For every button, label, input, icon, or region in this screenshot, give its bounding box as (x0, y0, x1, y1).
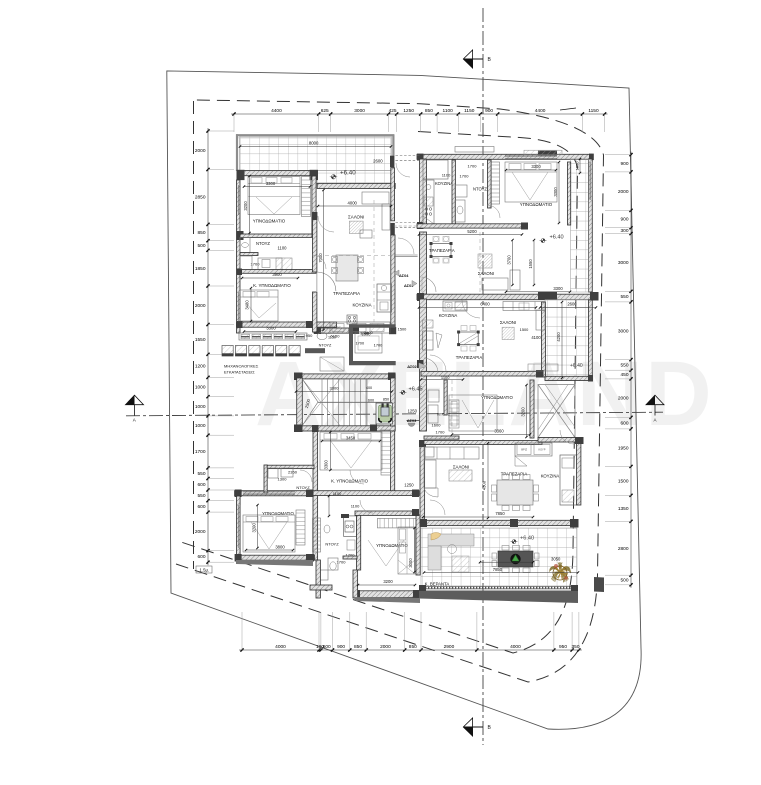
svg-text:1100: 1100 (443, 108, 454, 114)
svg-text:ΚΟΥΖΙΝΑ: ΚΟΥΖΙΝΑ (541, 474, 560, 479)
svg-text:2900: 2900 (444, 644, 455, 650)
svg-text:600: 600 (368, 399, 374, 403)
svg-text:300: 300 (620, 228, 628, 234)
svg-text:3000: 3000 (408, 558, 413, 568)
svg-text:1000: 1000 (575, 161, 580, 171)
svg-text:ΤΡΑΠΕΖΑΡΙΑ: ΤΡΑΠΕΖΑΡΙΑ (456, 355, 483, 360)
svg-text:1700: 1700 (460, 174, 470, 179)
svg-text:1900: 1900 (360, 331, 369, 336)
svg-text:1700: 1700 (468, 164, 478, 169)
svg-text:1.5μ.: 1.5μ. (200, 568, 210, 573)
svg-text:3300: 3300 (266, 181, 276, 186)
svg-text:2800: 2800 (618, 546, 629, 552)
svg-text:Κ. ΥΠΝΟΔΩΜΑΤΙΟ: Κ. ΥΠΝΟΔΩΜΑΤΙΟ (331, 479, 369, 484)
svg-text:600: 600 (197, 504, 205, 510)
svg-text:ΤΡΑΠΕΖΑΡΙΑ: ΤΡΑΠΕΖΑΡΙΑ (501, 472, 528, 477)
svg-text:3900: 3900 (272, 272, 282, 277)
svg-text:Κ. ΒΕΡΑΝΤΑ: Κ. ΒΕΡΑΝΤΑ (425, 582, 450, 587)
svg-text:+6.40: +6.40 (340, 170, 356, 177)
svg-text:4000: 4000 (348, 200, 358, 205)
svg-text:3300: 3300 (324, 459, 329, 469)
svg-text:1700: 1700 (374, 343, 383, 348)
svg-text:A: A (653, 418, 656, 423)
svg-text:900: 900 (337, 644, 345, 650)
svg-text:3050: 3050 (551, 556, 561, 561)
svg-text:3300: 3300 (330, 386, 340, 391)
svg-text:4300: 4300 (482, 480, 487, 490)
svg-text:600: 600 (323, 644, 331, 650)
svg-text:900: 900 (620, 217, 628, 223)
svg-text:ΝΤΟΥΖ: ΝΤΟΥΖ (256, 241, 270, 246)
svg-text:3000: 3000 (618, 260, 629, 266)
svg-text:ΥΠΝΟΔΩΜΑΤΙΟ: ΥΠΝΟΔΩΜΑΤΙΟ (481, 395, 513, 400)
svg-text:950: 950 (306, 333, 313, 338)
svg-text:350: 350 (571, 644, 579, 650)
svg-text:550: 550 (620, 363, 628, 369)
svg-text:Κ. ΥΠΝΟΔΩΜΑΤΙΟ: Κ. ΥΠΝΟΔΩΜΑΤΙΟ (253, 283, 291, 288)
svg-text:ΝΤΟΥΖ: ΝΤΟΥΖ (325, 542, 339, 547)
svg-text:8000: 8000 (309, 141, 319, 146)
svg-text:850: 850 (383, 398, 389, 402)
svg-text:ΕΓΚΑΤΑΣΤΑΣΕΙΣ: ΕΓΚΑΤΑΣΤΑΣΕΙΣ (224, 370, 255, 375)
svg-text:1100: 1100 (277, 246, 287, 251)
svg-text:ΝΤΟΥΖ: ΝΤΟΥΖ (296, 485, 310, 490)
svg-text:2000: 2000 (618, 189, 629, 195)
svg-text:1150: 1150 (328, 335, 336, 339)
svg-text:850: 850 (409, 644, 417, 650)
svg-text:ΤΡΑΠΕΖΑΡΙΑ: ΤΡΑΠΕΖΑΡΙΑ (333, 291, 360, 296)
svg-text:2000: 2000 (380, 644, 391, 650)
svg-text:1100: 1100 (333, 491, 342, 496)
svg-text:850: 850 (197, 230, 205, 236)
svg-text:3400: 3400 (245, 300, 250, 310)
svg-text:3000: 3000 (618, 328, 629, 334)
svg-text:A: A (133, 418, 136, 423)
svg-text:1000: 1000 (195, 404, 206, 410)
svg-text:1200: 1200 (195, 364, 206, 370)
svg-text:625: 625 (321, 108, 329, 114)
svg-text:+6.40: +6.40 (550, 235, 564, 241)
svg-text:ΜΗΧΑΝΟΛΟΓΙΚΕΣ: ΜΗΧΑΝΟΛΟΓΙΚΕΣ (224, 364, 259, 369)
svg-text:2000: 2000 (618, 396, 629, 402)
svg-text:1500: 1500 (618, 479, 629, 485)
svg-text:4000: 4000 (510, 644, 521, 650)
svg-text:7850: 7850 (493, 567, 503, 572)
svg-text:4200: 4200 (556, 332, 561, 342)
svg-text:600: 600 (197, 554, 205, 560)
svg-text:2000: 2000 (195, 148, 206, 154)
svg-text:ΔΣ04: ΔΣ04 (399, 273, 409, 278)
svg-text:950: 950 (559, 644, 567, 650)
svg-text:ΣΑΛΟΝΙ: ΣΑΛΟΝΙ (348, 214, 364, 219)
svg-text:4400: 4400 (271, 108, 282, 114)
svg-text:2600: 2600 (373, 159, 383, 164)
svg-text:2000: 2000 (195, 529, 206, 535)
svg-text:6400: 6400 (480, 302, 490, 307)
svg-text:ΚΟΥΖΙΝΑ: ΚΟΥΖΙΝΑ (439, 313, 458, 318)
svg-text:ΦΡΙΖ: ΦΡΙΖ (521, 448, 528, 452)
svg-text:ΝΤΟΥΖ: ΝΤΟΥΖ (319, 344, 332, 348)
svg-text:1350: 1350 (618, 506, 629, 512)
svg-text:2850: 2850 (195, 195, 206, 201)
svg-text:ΣΑΛΟΝΙ: ΣΑΛΟΝΙ (500, 320, 516, 325)
svg-text:900: 900 (620, 161, 628, 167)
svg-text:+6.45: +6.45 (409, 386, 423, 392)
svg-text:1550: 1550 (195, 337, 206, 343)
svg-text:500: 500 (197, 243, 205, 249)
svg-text:3300: 3300 (553, 286, 563, 291)
svg-text:1700: 1700 (195, 449, 206, 455)
svg-text:850: 850 (354, 644, 362, 650)
svg-text:4400: 4400 (535, 108, 546, 114)
svg-text:ΨΥΓ: ΨΥΓ (335, 326, 341, 330)
svg-text:2000: 2000 (195, 303, 206, 309)
svg-text:1000: 1000 (195, 385, 206, 391)
svg-text:1150: 1150 (588, 108, 599, 114)
svg-text:+6.40: +6.40 (570, 363, 583, 369)
svg-text:ΣΑΛΟΝΙ: ΣΑΛΟΝΙ (453, 464, 469, 469)
svg-text:600: 600 (197, 482, 205, 488)
svg-text:1100: 1100 (442, 173, 451, 178)
svg-text:3450: 3450 (346, 435, 356, 440)
svg-text:ΚΟΥΡ: ΚΟΥΡ (538, 448, 545, 452)
svg-text:550: 550 (620, 294, 628, 300)
svg-text:ΥΠΝΟΔΩΜΑΤΙΟ: ΥΠΝΟΔΩΜΑΤΙΟ (520, 202, 553, 207)
svg-text:900: 900 (485, 108, 493, 114)
svg-text:ΝΤΟΥΖ: ΝΤΟΥΖ (473, 187, 487, 192)
svg-text:7850: 7850 (495, 511, 505, 516)
svg-text:1550: 1550 (528, 259, 533, 269)
svg-text:425: 425 (389, 108, 397, 114)
svg-text:5200: 5200 (467, 229, 477, 234)
svg-text:ΥΠΝΟΔΩΜΑΤΙΟ: ΥΠΝΟΔΩΜΑΤΙΟ (376, 543, 408, 548)
svg-text:3200: 3200 (521, 407, 526, 417)
svg-text:3800: 3800 (275, 544, 285, 549)
svg-text:400: 400 (366, 386, 372, 390)
svg-text:450: 450 (620, 372, 628, 378)
svg-text:1700: 1700 (436, 430, 446, 435)
svg-text:4100: 4100 (531, 335, 541, 340)
svg-text:1250: 1250 (408, 409, 418, 414)
svg-text:1950: 1950 (618, 445, 629, 451)
svg-text:1250: 1250 (403, 108, 414, 114)
svg-text:1700: 1700 (355, 340, 364, 345)
svg-text:500: 500 (620, 578, 628, 584)
svg-text:1000: 1000 (195, 423, 206, 429)
svg-text:ΥΠΝΟΔΩΜΑΤΙΟ: ΥΠΝΟΔΩΜΑΤΙΟ (253, 219, 286, 224)
svg-text:3300: 3300 (531, 164, 541, 169)
svg-text:600: 600 (620, 421, 628, 427)
svg-text:ΚΟΥΖΙΝΑ: ΚΟΥΖΙΝΑ (353, 303, 372, 308)
svg-text:850: 850 (425, 108, 433, 114)
svg-text:1250: 1250 (404, 483, 414, 488)
svg-text:1100: 1100 (351, 503, 360, 508)
svg-text:3000: 3000 (354, 108, 365, 114)
svg-text:3200: 3200 (383, 579, 393, 584)
svg-text:550: 550 (197, 493, 205, 499)
svg-text:ΚΟΥΖΙΝΑ: ΚΟΥΖΙΝΑ (435, 181, 453, 186)
svg-text:3200: 3200 (243, 201, 248, 211)
svg-text:+6.40: +6.40 (520, 536, 534, 542)
svg-text:3700: 3700 (507, 255, 512, 265)
svg-text:1500: 1500 (520, 327, 529, 332)
svg-text:1850: 1850 (195, 266, 206, 272)
svg-text:ΔΣ02: ΔΣ02 (407, 364, 417, 369)
svg-text:4000: 4000 (275, 644, 286, 650)
svg-text:ΣΑΛΟΝΙ: ΣΑΛΟΝΙ (478, 271, 494, 276)
svg-text:1150: 1150 (464, 108, 475, 114)
svg-text:1500: 1500 (398, 327, 407, 332)
svg-text:550: 550 (197, 471, 205, 477)
